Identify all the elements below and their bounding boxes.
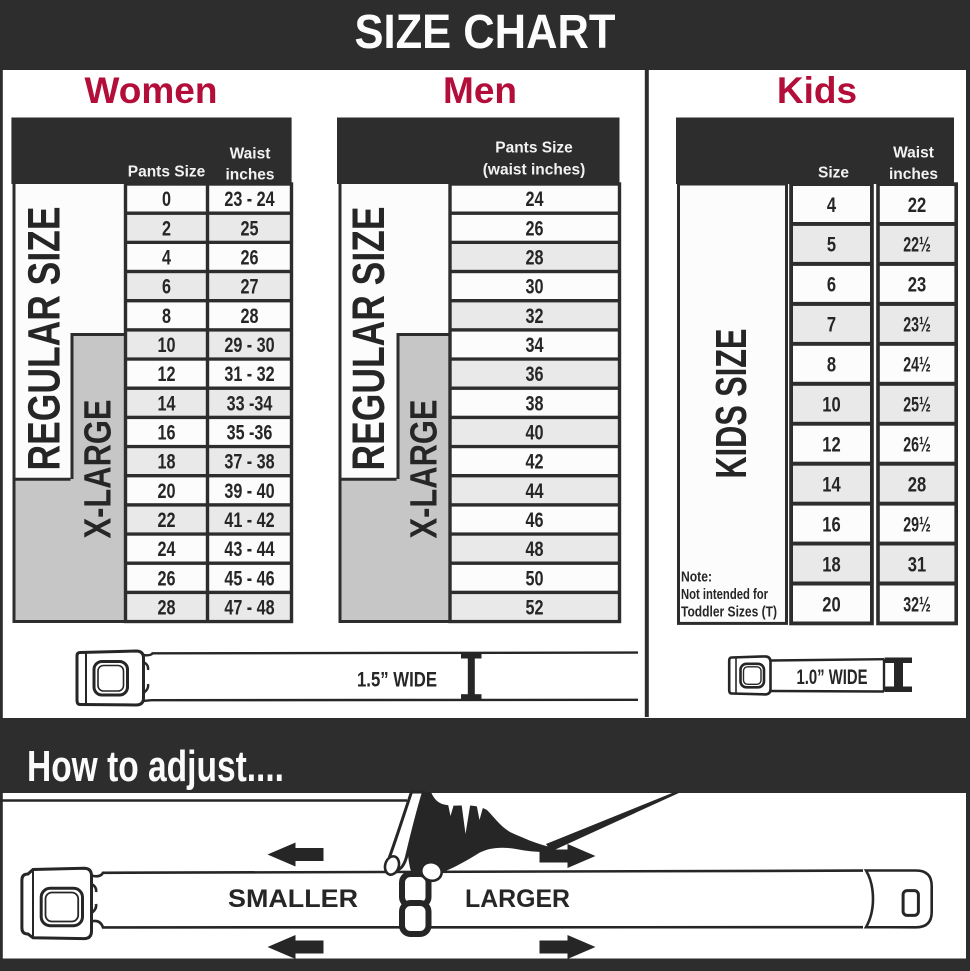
svg-text:39 - 40: 39 - 40 [224, 480, 274, 503]
svg-text:31 - 32: 31 - 32 [224, 363, 274, 386]
svg-text:Pants Size: Pants Size [128, 164, 206, 181]
svg-text:How to adjust....: How to adjust.... [27, 742, 284, 791]
svg-text:35 -36: 35 -36 [227, 422, 273, 445]
svg-text:4: 4 [827, 193, 836, 217]
svg-text:37 - 38: 37 - 38 [224, 451, 275, 474]
svg-text:Waist: Waist [893, 145, 934, 162]
svg-text:Kids: Kids [777, 70, 857, 111]
svg-text:6: 6 [162, 276, 171, 299]
svg-text:26: 26 [526, 217, 544, 240]
svg-text:20: 20 [158, 480, 176, 503]
svg-text:1.5” WIDE: 1.5” WIDE [357, 669, 437, 692]
svg-text:20: 20 [822, 592, 840, 616]
svg-text:18: 18 [822, 552, 840, 576]
svg-text:10: 10 [158, 334, 176, 357]
svg-text:23 - 24: 23 - 24 [224, 188, 275, 211]
svg-text:8: 8 [162, 305, 171, 328]
svg-text:10: 10 [822, 393, 840, 417]
svg-text:52: 52 [526, 597, 544, 620]
svg-text:12: 12 [822, 433, 840, 457]
svg-text:inches: inches [225, 167, 274, 184]
svg-text:2: 2 [162, 217, 171, 240]
svg-text:24: 24 [158, 538, 176, 561]
svg-text:5: 5 [827, 233, 836, 257]
svg-text:28: 28 [158, 597, 176, 620]
svg-text:Pants Size: Pants Size [495, 140, 573, 157]
svg-text:14: 14 [158, 392, 176, 415]
svg-text:24½: 24½ [903, 353, 931, 377]
svg-text:40: 40 [526, 422, 544, 445]
svg-text:22: 22 [908, 193, 926, 217]
svg-text:Toddler Sizes (T): Toddler Sizes (T) [681, 604, 777, 621]
svg-text:22½: 22½ [903, 233, 931, 257]
svg-text:Size: Size [818, 165, 849, 182]
svg-text:48: 48 [526, 538, 544, 561]
svg-text:25½: 25½ [903, 393, 931, 417]
svg-text:29½: 29½ [903, 512, 931, 536]
svg-text:14: 14 [822, 472, 840, 496]
svg-text:SMALLER: SMALLER [228, 885, 358, 913]
svg-text:43 - 44: 43 - 44 [224, 538, 275, 561]
svg-text:12: 12 [158, 363, 176, 386]
svg-text:4: 4 [162, 247, 171, 270]
svg-text:Women: Women [85, 70, 218, 111]
svg-text:Men: Men [443, 70, 517, 111]
svg-text:0: 0 [162, 188, 171, 211]
svg-text:8: 8 [827, 353, 836, 377]
svg-text:KIDS SIZE: KIDS SIZE [707, 329, 756, 479]
svg-text:23: 23 [908, 273, 926, 297]
svg-text:16: 16 [158, 422, 176, 445]
svg-text:28: 28 [908, 472, 926, 496]
svg-text:44: 44 [526, 480, 544, 503]
svg-text:23½: 23½ [903, 313, 931, 337]
svg-text:REGULAR SIZE: REGULAR SIZE [343, 207, 394, 471]
svg-text:Note:: Note: [681, 569, 712, 586]
svg-text:(waist inches): (waist inches) [483, 162, 586, 179]
svg-text:24: 24 [526, 188, 544, 211]
svg-text:29 - 30: 29 - 30 [224, 334, 274, 357]
svg-text:32: 32 [526, 305, 544, 328]
svg-text:26½: 26½ [903, 433, 931, 457]
svg-text:42: 42 [526, 451, 544, 474]
svg-text:1.0” WIDE: 1.0” WIDE [797, 666, 868, 689]
svg-text:41 - 42: 41 - 42 [224, 509, 274, 532]
svg-text:30: 30 [526, 276, 544, 299]
svg-text:46: 46 [526, 509, 544, 532]
svg-text:SIZE CHART: SIZE CHART [355, 6, 616, 59]
svg-text:45 - 46: 45 - 46 [224, 567, 274, 590]
svg-text:36: 36 [526, 363, 544, 386]
svg-text:27: 27 [241, 276, 259, 299]
svg-text:28: 28 [241, 305, 259, 328]
svg-text:25: 25 [241, 217, 259, 240]
svg-text:32½: 32½ [903, 592, 931, 616]
svg-text:26: 26 [158, 567, 176, 590]
svg-text:X-LARGE: X-LARGE [404, 400, 446, 539]
svg-text:REGULAR SIZE: REGULAR SIZE [19, 207, 70, 471]
svg-text:X-LARGE: X-LARGE [78, 400, 120, 539]
svg-text:47 - 48: 47 - 48 [224, 597, 275, 620]
svg-text:inches: inches [889, 166, 938, 183]
svg-text:18: 18 [158, 451, 176, 474]
svg-text:16: 16 [822, 512, 840, 536]
svg-text:28: 28 [526, 247, 544, 270]
svg-text:33 -34: 33 -34 [227, 392, 273, 415]
svg-text:Waist: Waist [230, 146, 271, 163]
svg-text:Not intended for: Not intended for [681, 586, 768, 603]
svg-text:22: 22 [158, 509, 176, 532]
svg-text:6: 6 [827, 273, 836, 297]
svg-text:7: 7 [827, 313, 836, 337]
svg-text:38: 38 [526, 392, 544, 415]
svg-text:34: 34 [526, 334, 544, 357]
svg-text:31: 31 [908, 552, 926, 576]
svg-text:26: 26 [241, 247, 259, 270]
svg-text:50: 50 [526, 567, 544, 590]
svg-text:LARGER: LARGER [465, 885, 570, 913]
